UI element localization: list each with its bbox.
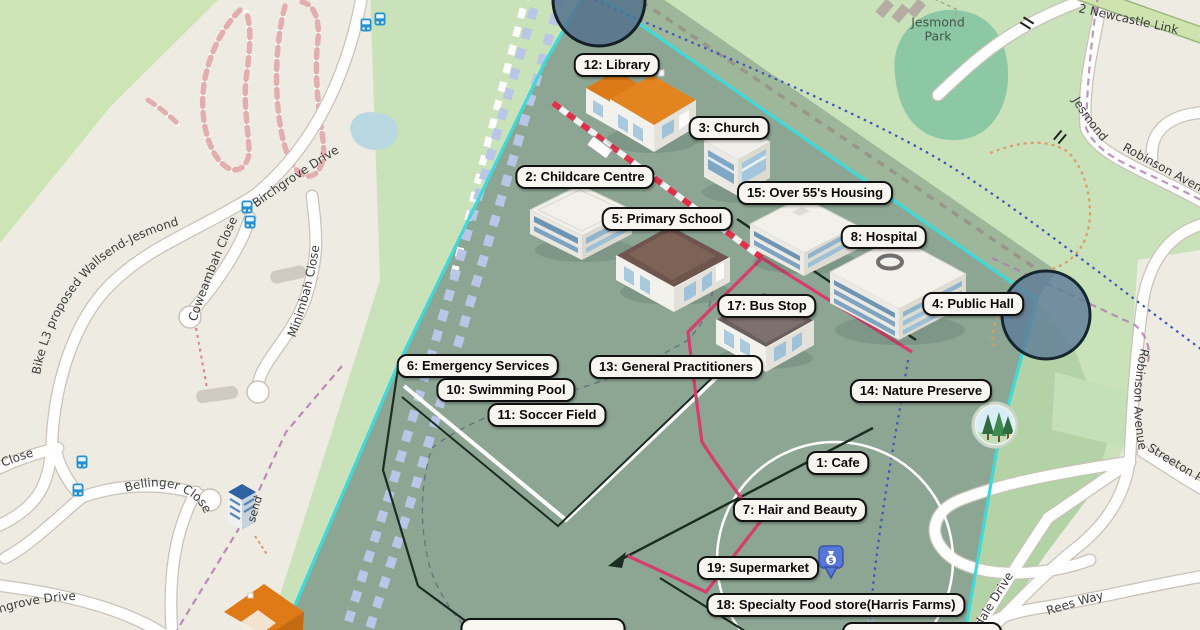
map-label-pill[interactable]: 3: Church — [689, 116, 770, 140]
map-label-pill[interactable]: 1: Cafe — [806, 451, 869, 475]
bus-icon — [242, 201, 253, 214]
bus-icon — [73, 484, 84, 497]
map-label-pill[interactable]: 17: Bus Stop — [717, 294, 816, 318]
svg-text:$: $ — [828, 556, 834, 565]
map-label-pill[interactable]: 4: Public Hall — [922, 292, 1024, 316]
map-label-pill[interactable]: 10: Swimming Pool — [436, 378, 575, 402]
map-label-pill[interactable]: 2: Childcare Centre — [515, 165, 654, 189]
bus-icon — [375, 13, 386, 26]
park-name-label: Jesmond Park — [911, 16, 965, 45]
map-label-pill[interactable]: 11: Soccer Field — [488, 403, 607, 427]
map-label-pill[interactable]: 12: Library — [574, 53, 660, 77]
map-view: $ Birchgrove Drive Coweambah Close Minim… — [0, 0, 1200, 630]
map-label-pill[interactable]: 14: Nature Preserve — [850, 379, 992, 403]
map-label-pill[interactable]: 5: Primary School — [602, 207, 733, 231]
map-canvas: $ Birchgrove Drive Coweambah Close Minim… — [0, 0, 1200, 630]
map-label-pill[interactable]: 7: Hair and Beauty — [733, 498, 867, 522]
map-label-pill[interactable]: 13: General Practitioners — [589, 355, 763, 379]
bus-icon — [361, 19, 372, 32]
map-label-pill[interactable]: 18: Specialty Food store(Harris Farms) — [706, 593, 965, 617]
map-label-pill[interactable]: 15: Over 55's Housing — [737, 181, 893, 205]
map-label-pill[interactable]: 8: Hospital — [841, 225, 927, 249]
map-label-pill[interactable]: 6: Emergency Services — [397, 354, 559, 378]
bus-icon — [245, 216, 256, 229]
map-label-pill-cut[interactable] — [461, 618, 626, 630]
bus-icon — [77, 456, 88, 469]
map-label-pill-cut[interactable] — [842, 622, 1002, 630]
forest-icon[interactable] — [973, 403, 1017, 447]
map-label-pill[interactable]: 19: Supermarket — [697, 556, 819, 580]
